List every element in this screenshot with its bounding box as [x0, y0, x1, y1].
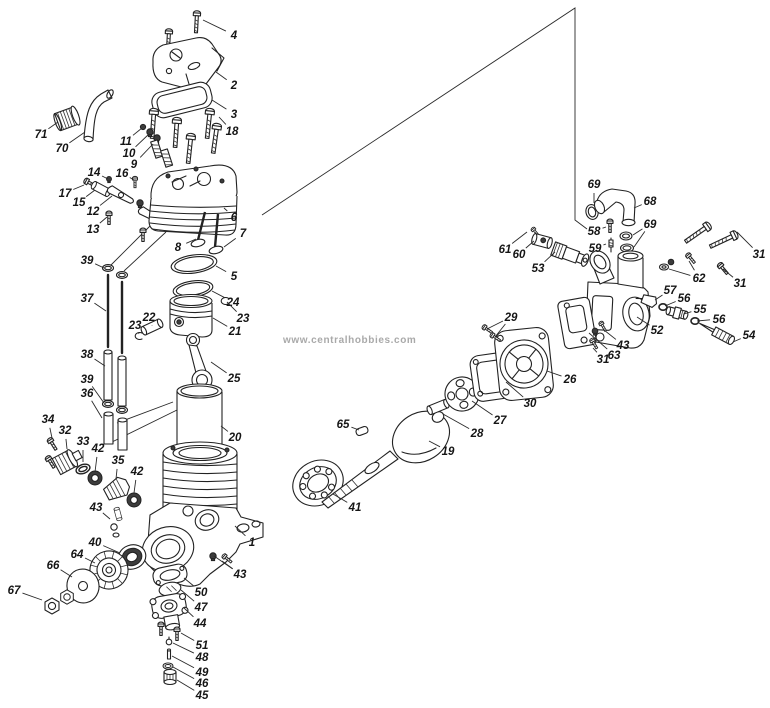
- leader-line: [69, 132, 85, 143]
- leader-line: [140, 144, 153, 157]
- leader-line: [22, 593, 42, 600]
- leader-line: [172, 656, 194, 668]
- part-37-pushrods: [108, 275, 122, 353]
- part-45-plug: [164, 670, 176, 685]
- leader-line: [100, 196, 112, 205]
- part-label: 36: [81, 388, 94, 400]
- part-51-screw: [174, 627, 180, 640]
- part-label: 42: [91, 443, 105, 455]
- leader-line: [212, 100, 226, 109]
- part-label: 33: [77, 436, 90, 448]
- part-label: 52: [651, 325, 664, 337]
- part-31-screw-c: [716, 262, 729, 276]
- part-label: 40: [88, 537, 102, 549]
- part-label: 56: [678, 293, 691, 305]
- part-9-valve-springs: [151, 140, 173, 167]
- leader-line: [603, 227, 606, 228]
- part-25-connecting-rod: [187, 334, 213, 391]
- part-label: 26: [563, 374, 577, 386]
- part-label: 1: [249, 537, 255, 549]
- part-label: 59: [589, 243, 602, 255]
- leader-line: [86, 190, 95, 197]
- part-label: 45: [195, 690, 209, 702]
- leader-line: [92, 401, 102, 418]
- assembly-line: [124, 232, 166, 271]
- leader-line: [213, 318, 227, 326]
- part-label: 43: [89, 502, 103, 514]
- part-label: 57: [664, 285, 677, 297]
- leader-line: [216, 72, 227, 80]
- part-label: 68: [644, 196, 657, 208]
- part-label: 43: [233, 569, 247, 581]
- part-2-valve-cover: [153, 38, 224, 90]
- part-label: 58: [588, 226, 601, 238]
- leader-line: [103, 513, 110, 519]
- leader-line: [73, 185, 84, 190]
- part-21-piston: [170, 295, 212, 338]
- part-12-rocker-arm: [106, 185, 135, 205]
- part-14-keeper: [106, 176, 111, 182]
- part-label: 2: [230, 80, 238, 92]
- part-53-spraybar: [551, 242, 591, 268]
- part-62-screw-washer: [660, 252, 697, 270]
- part-42-bearing-b: [127, 493, 141, 507]
- part-39-orings-top: [103, 265, 128, 279]
- part-label: 23: [236, 313, 250, 325]
- part-label: 63: [608, 350, 621, 362]
- leader-line: [737, 232, 753, 248]
- part-label: 22: [142, 312, 156, 324]
- part-label: 30: [524, 398, 537, 410]
- leader-line: [100, 217, 107, 223]
- part-label: 60: [513, 249, 526, 261]
- leader-line: [66, 439, 67, 449]
- part-label: 71: [35, 129, 48, 141]
- part-label: 28: [470, 428, 484, 440]
- assembly-line: [262, 8, 587, 229]
- part-label: 5: [231, 271, 238, 283]
- part-label: 41: [348, 502, 362, 514]
- part-6-cylinder-head: [149, 165, 237, 235]
- part-label: 34: [42, 414, 55, 426]
- leader-line: [133, 128, 142, 135]
- part-label: 37: [81, 293, 94, 305]
- leader-line: [603, 244, 606, 245]
- part-label: 4: [230, 30, 238, 42]
- part-26-backplate: [493, 326, 554, 401]
- part-label: 14: [88, 167, 101, 179]
- leader-line: [95, 457, 97, 472]
- part-label: 29: [504, 312, 518, 324]
- part-label: 69: [588, 179, 601, 191]
- part-label: 35: [112, 455, 125, 467]
- leader-line: [50, 428, 52, 438]
- part-label: 46: [195, 678, 209, 690]
- part-60-link-block: [531, 233, 554, 249]
- exploded-view-diagram: www.centralhobbies.com 42318717011109141…: [0, 0, 770, 708]
- part-65-key: [355, 426, 369, 437]
- leader-line: [669, 269, 690, 275]
- leader-line: [224, 238, 236, 247]
- part-label: 55: [694, 304, 707, 316]
- part-label: 11: [120, 136, 132, 148]
- part-19-crankshaft: [322, 401, 459, 508]
- part-label: 17: [59, 188, 72, 200]
- part-label: 31: [734, 278, 747, 290]
- leader-line: [94, 303, 106, 311]
- part-label: 56: [713, 314, 726, 326]
- part-58-screw: [607, 219, 613, 232]
- part-59-needle: [609, 238, 613, 252]
- leader-line: [173, 643, 194, 653]
- part-label: 7: [240, 228, 247, 240]
- part-label: 38: [81, 349, 94, 361]
- part-label: 47: [194, 602, 208, 614]
- leader-line: [181, 633, 194, 641]
- part-31-bolt-b: [708, 230, 739, 251]
- leader-line: [512, 232, 527, 243]
- leader-line: [61, 570, 72, 577]
- part-31-bolt-a: [683, 221, 713, 246]
- parts-diagram-canvas: www.centralhobbies.com 42318717011109141…: [0, 0, 770, 708]
- part-label: 62: [693, 273, 706, 285]
- part-55-needle-holder: [665, 305, 689, 321]
- part-16-screw: [132, 176, 137, 187]
- part-48-ball: [166, 637, 172, 645]
- leader-line: [211, 362, 227, 373]
- part-label: 20: [228, 432, 242, 444]
- leader-line: [92, 386, 104, 403]
- part-label: 39: [81, 255, 94, 267]
- part-label: 13: [87, 224, 100, 236]
- part-label: 31: [753, 249, 766, 261]
- leader-line: [545, 252, 555, 262]
- part-label: 69: [644, 219, 657, 231]
- part-label: 27: [493, 415, 507, 427]
- part-label: 54: [743, 330, 756, 342]
- leader-line: [94, 359, 105, 366]
- part-label: 64: [71, 549, 84, 561]
- part-38-tube-covers: [104, 350, 126, 406]
- part-69-orings-lower: [620, 232, 634, 252]
- leader-line: [136, 134, 149, 147]
- part-label: 66: [47, 560, 60, 572]
- part-44-cam-cover: [149, 592, 191, 633]
- part-label: 51: [196, 640, 209, 652]
- part-label: 44: [193, 618, 207, 630]
- part-label: 70: [56, 143, 69, 155]
- part-label: 32: [59, 425, 72, 437]
- leader-line: [95, 264, 104, 268]
- part-5-piston-ring: [170, 252, 218, 276]
- part-label: 39: [81, 374, 94, 386]
- part-label: 67: [8, 585, 21, 597]
- part-70-exhaust-pipe: [84, 89, 115, 142]
- part-label: 48: [195, 652, 209, 664]
- leader-line: [177, 680, 194, 690]
- part-67-prop-nuts: [45, 590, 73, 614]
- part-label: 31: [597, 354, 610, 366]
- leader-line: [665, 301, 676, 306]
- leader-line: [219, 117, 226, 124]
- part-46-oring: [163, 663, 173, 669]
- part-68-intake-elbow: [592, 189, 635, 226]
- leader-line: [723, 269, 733, 277]
- leader-line: [487, 321, 503, 329]
- watermark-text: www.centralhobbies.com: [282, 335, 416, 346]
- part-3-cover-gasket: [150, 80, 215, 120]
- part-71-plug: [52, 105, 82, 132]
- part-label: 18: [226, 126, 239, 138]
- part-label: 42: [130, 466, 144, 478]
- part-13-screw: [106, 211, 112, 224]
- part-label: 21: [228, 326, 242, 338]
- part-49-pin: [168, 649, 171, 659]
- part-label: 65: [337, 419, 350, 431]
- part-label: 6: [231, 212, 238, 224]
- part-label: 3: [231, 109, 238, 121]
- part-36-tubes: [104, 412, 127, 450]
- part-label: 61: [499, 244, 512, 256]
- leader-line: [472, 401, 493, 415]
- part-43-fittings-left: [111, 507, 123, 537]
- part-label: 15: [73, 197, 86, 209]
- part-label: 50: [195, 587, 208, 599]
- part-label: 9: [131, 159, 138, 171]
- part-label: 23: [128, 320, 142, 332]
- cover-screw: [158, 622, 164, 635]
- leader-line: [203, 20, 226, 31]
- part-label: 53: [532, 263, 545, 275]
- leader-line: [216, 266, 226, 272]
- part-label: 25: [227, 373, 241, 385]
- part-41-main-bearing: [285, 451, 352, 514]
- leader-line: [633, 229, 642, 235]
- part-label: 8: [175, 242, 182, 254]
- part-56-oring-a: [659, 304, 667, 310]
- part-label: 16: [116, 168, 129, 180]
- leader-line: [134, 480, 136, 493]
- part-label: 12: [87, 206, 100, 218]
- leader-line: [212, 291, 225, 298]
- part-label: 19: [442, 446, 455, 458]
- part-42-bearing-a: [88, 471, 102, 485]
